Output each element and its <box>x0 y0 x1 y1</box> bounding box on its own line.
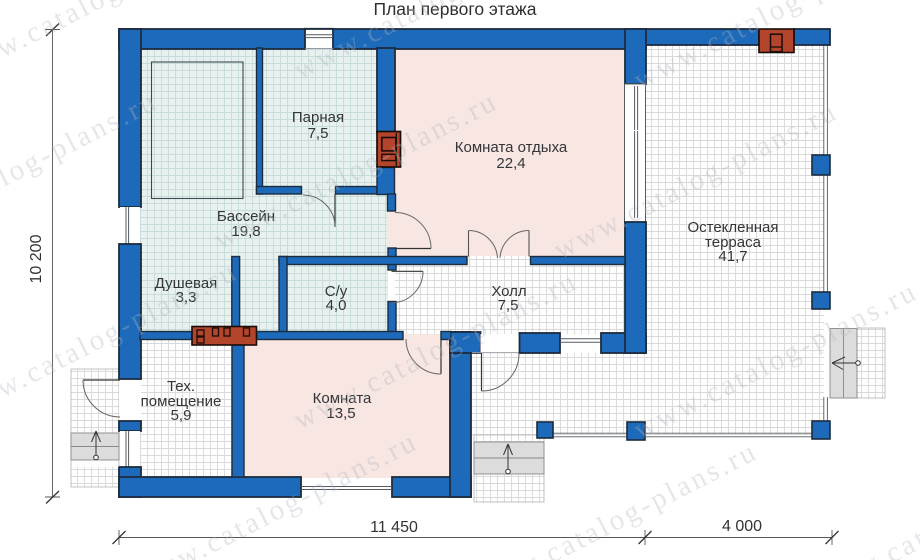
svg-text:7,5: 7,5 <box>308 125 329 142</box>
svg-text:4,0: 4,0 <box>326 297 347 314</box>
svg-text:4 000: 4 000 <box>722 518 762 535</box>
svg-text:Парная: Парная <box>292 109 344 126</box>
svg-text:Комната отдыха: Комната отдыха <box>455 139 568 156</box>
svg-text:22,4: 22,4 <box>496 155 525 172</box>
svg-text:10 200: 10 200 <box>28 234 45 283</box>
svg-text:41,7: 41,7 <box>718 248 747 265</box>
svg-text:5,9: 5,9 <box>171 407 192 424</box>
svg-text:11 450: 11 450 <box>370 519 418 536</box>
